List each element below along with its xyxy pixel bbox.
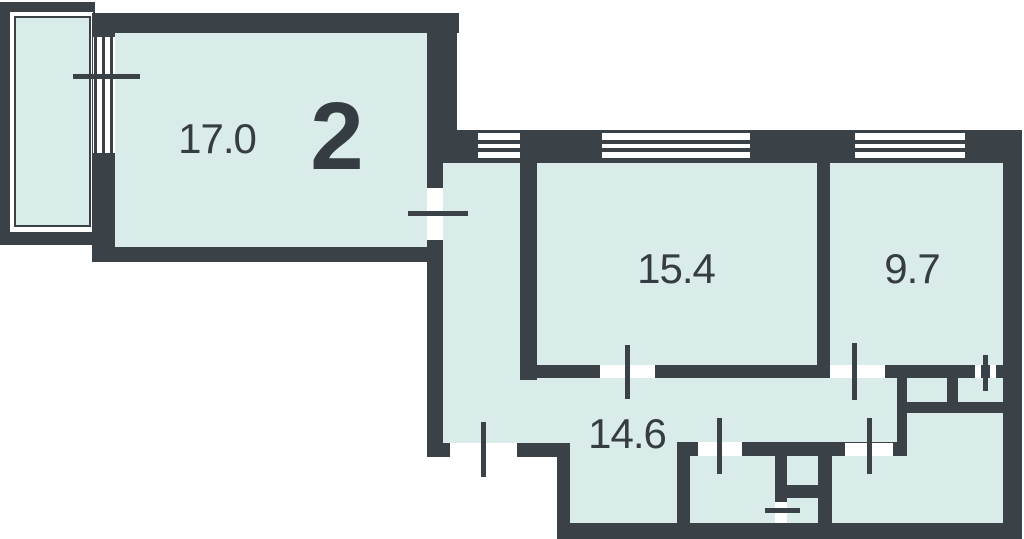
duct-bottom-wall xyxy=(897,402,1003,413)
door-mark xyxy=(625,345,630,399)
window-icon xyxy=(855,133,965,158)
door-opening xyxy=(830,365,885,378)
door-mark xyxy=(983,355,988,391)
rooms-count-label: 2 xyxy=(287,89,387,185)
room-1-bottom-wall xyxy=(92,247,443,262)
door-opening xyxy=(990,365,996,378)
room-2-kitchen-wall xyxy=(817,163,830,378)
rooms-bottom-wall xyxy=(520,365,1003,378)
room-area-label: 14.6 xyxy=(567,409,687,459)
room-area-label: 17.0 xyxy=(157,114,277,164)
shaft-right-wall xyxy=(818,455,832,523)
door-mark xyxy=(717,418,722,474)
room-1-top-wall xyxy=(92,13,459,33)
door-mark xyxy=(867,418,872,474)
door-mark xyxy=(852,343,857,400)
room-area-label: 9.7 xyxy=(852,244,972,294)
window-icon xyxy=(478,133,520,158)
window-mark xyxy=(73,74,140,79)
bottom-outer-wall xyxy=(557,523,1022,539)
balcony xyxy=(14,16,91,227)
balcony-window-icon xyxy=(93,37,115,153)
door-mark xyxy=(765,508,800,513)
outside-cutout xyxy=(427,457,570,539)
door-mark xyxy=(408,211,468,216)
vestibule-wall xyxy=(520,163,537,380)
door-mark xyxy=(481,422,486,477)
floor-plan: 17.0 2 15.4 9.7 14.6 xyxy=(0,0,1024,539)
door-opening xyxy=(975,365,981,378)
right-outer-wall xyxy=(1003,150,1022,539)
room-area-label: 15.4 xyxy=(616,244,736,294)
window-icon xyxy=(602,133,750,158)
